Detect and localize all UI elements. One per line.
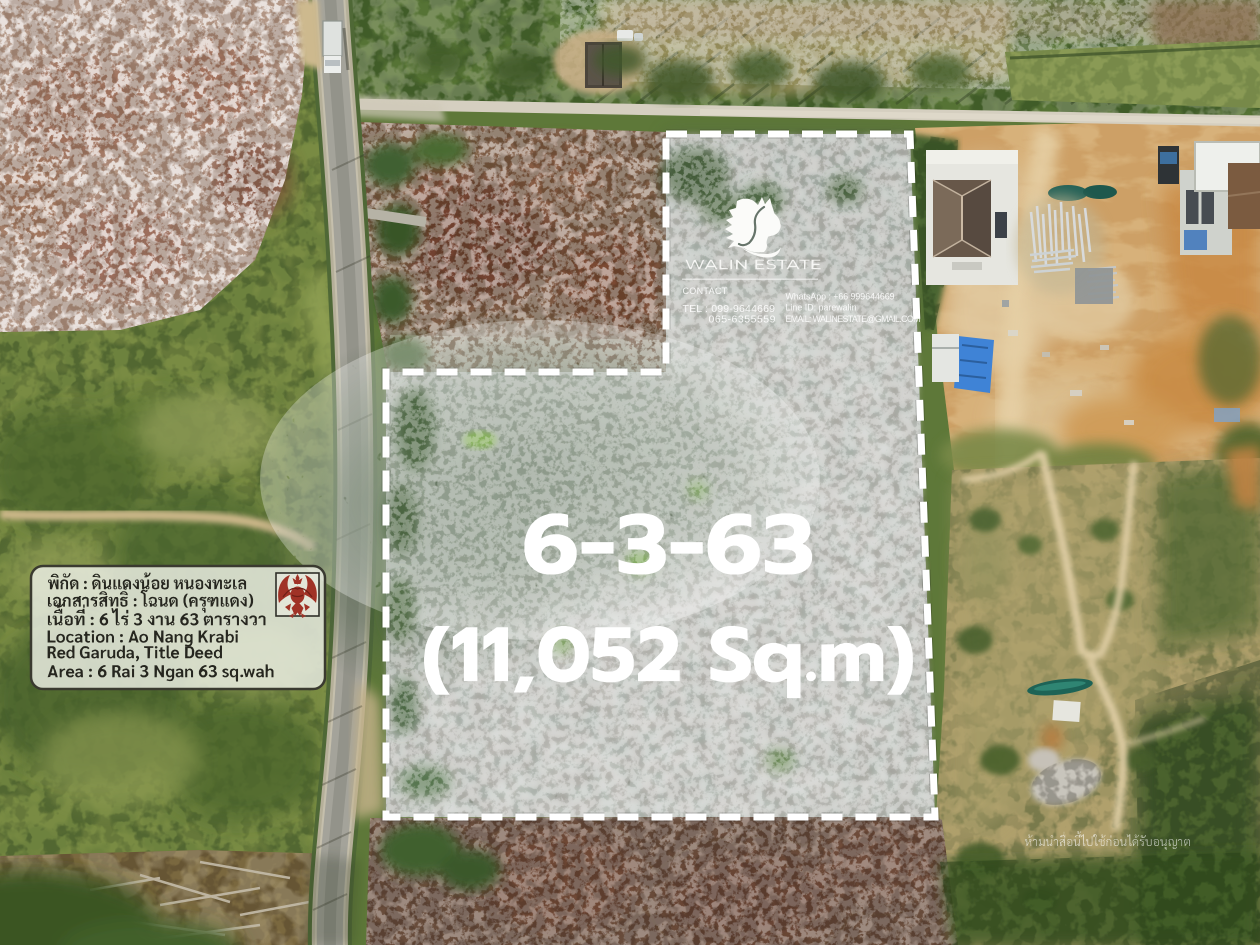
svg-text:065-6355559: 065-6355559	[709, 314, 776, 326]
svg-text:EMAIL: WALINESTATE@GMAIL.COM: EMAIL: WALINESTATE@GMAIL.COM	[786, 314, 921, 324]
svg-text:Line ID: parewalin: Line ID: parewalin	[786, 303, 857, 313]
svg-text:CONTACT: CONTACT	[683, 286, 729, 296]
svg-text:WhatsApp : +66 999644669: WhatsApp : +66 999644669	[786, 292, 895, 302]
